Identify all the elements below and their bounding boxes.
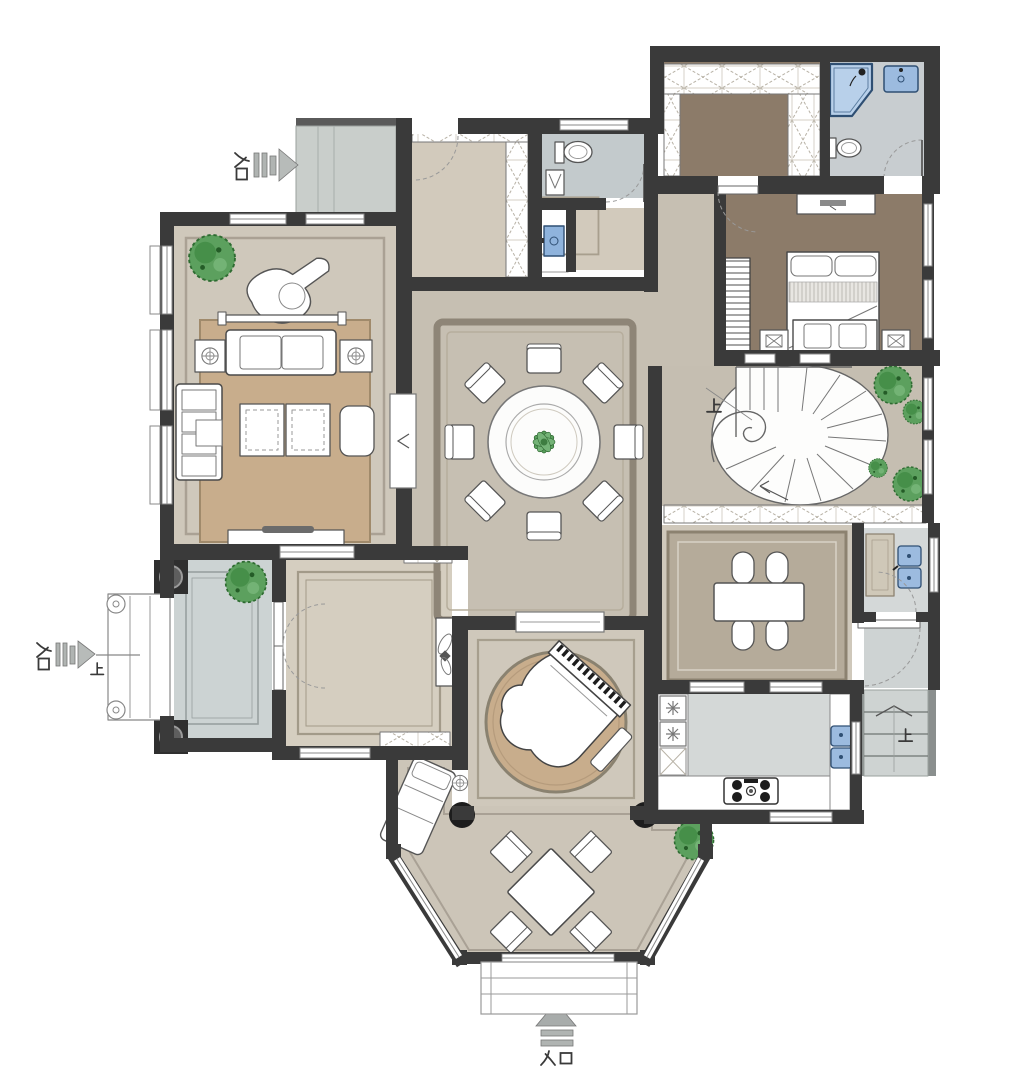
ottoman xyxy=(340,406,374,456)
plant-icon xyxy=(226,562,267,603)
plant-icon xyxy=(874,366,911,403)
blanket-band xyxy=(789,282,877,302)
floor-plan-drawing xyxy=(0,0,1024,1088)
sideboard xyxy=(435,618,454,686)
wardrobe-hatched xyxy=(506,142,528,277)
washbasin xyxy=(546,170,564,195)
gas-stove xyxy=(724,778,778,804)
porch-steps xyxy=(107,594,170,720)
main-sofa xyxy=(226,330,336,375)
terrace-edge xyxy=(296,118,396,126)
door-gap xyxy=(412,118,458,134)
plant-icon xyxy=(869,459,888,478)
plant-icon xyxy=(189,235,235,281)
cased-opening-living-hall xyxy=(390,394,416,488)
storage-room-floor xyxy=(576,208,644,270)
plant-icon xyxy=(893,467,927,501)
study-room-floor xyxy=(286,560,452,746)
pillow xyxy=(835,256,876,276)
entrance-label xyxy=(561,1053,572,1064)
french-door-leaf xyxy=(274,646,283,690)
rear-steps xyxy=(856,690,936,776)
nightstand xyxy=(760,330,788,352)
family-chair xyxy=(732,552,754,584)
desk xyxy=(797,194,875,214)
up-label xyxy=(91,663,104,675)
floor-plan xyxy=(0,0,1024,1088)
arrow-icon xyxy=(279,149,298,181)
ceiling-lamp-icon xyxy=(452,775,467,790)
tv xyxy=(262,526,314,533)
family-chair xyxy=(766,618,788,650)
nightstand xyxy=(882,330,910,352)
entrance-arrow-top xyxy=(235,149,298,181)
door-leaf xyxy=(718,186,758,194)
bathroom-sink xyxy=(884,66,918,92)
landing-floor xyxy=(864,622,928,688)
radiator-shelf xyxy=(722,258,750,352)
entrance-label xyxy=(237,169,248,180)
entrance-label xyxy=(39,659,50,670)
door-gap xyxy=(884,176,922,194)
family-chair xyxy=(732,618,754,650)
stair-corridor-floor xyxy=(648,291,714,366)
upper-corridor-floor xyxy=(658,194,714,292)
dining-chair xyxy=(527,348,561,373)
wardrobe-hatched xyxy=(664,64,820,94)
second-sofa xyxy=(176,384,222,480)
toilet xyxy=(555,142,592,164)
arrow-icon xyxy=(78,641,95,668)
family-table xyxy=(714,583,804,621)
front-steps xyxy=(481,962,637,1014)
family-chair xyxy=(766,552,788,584)
bed-bench xyxy=(793,320,877,352)
french-door-leaf xyxy=(274,602,283,646)
side-table-left xyxy=(195,340,225,372)
entrance-label xyxy=(235,153,249,167)
side-table-right xyxy=(340,340,372,372)
wardrobe-hatched xyxy=(664,94,680,176)
cabinet-hatched xyxy=(664,505,926,523)
cased-opening-dining-piano xyxy=(516,612,604,632)
terrace-canopy xyxy=(296,126,396,216)
kitchen-floor xyxy=(688,694,830,776)
toilet xyxy=(828,138,861,158)
wardrobe-hatched xyxy=(788,94,820,176)
bath-counter xyxy=(866,534,894,596)
tea-table-set xyxy=(490,831,612,953)
entrance-label xyxy=(541,1051,555,1065)
pillow xyxy=(791,256,832,276)
entrance-label xyxy=(37,643,51,657)
